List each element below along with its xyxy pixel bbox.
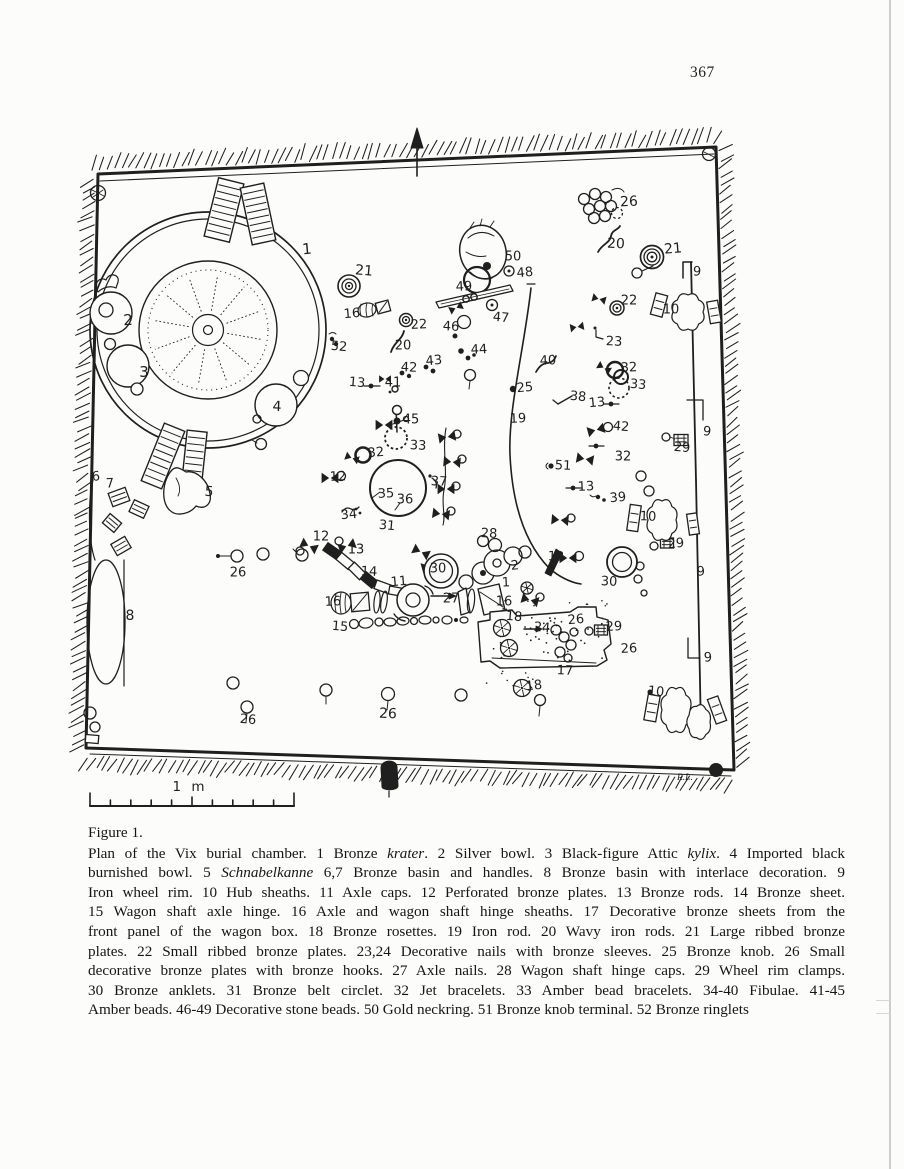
figure-label-40: 40 — [539, 353, 556, 369]
figure-label-35: 35 — [377, 486, 394, 502]
figure-label-7: 7 — [106, 476, 115, 491]
figure-label-26: 26 — [230, 566, 247, 581]
scan-artifact-tick — [876, 1013, 891, 1014]
figure-label-18: 18 — [505, 609, 523, 625]
figure-label-13: 13 — [588, 395, 606, 411]
figure-caption-label: Figure 1. — [88, 823, 845, 843]
caption-line: 15 Wagon shaft axle hinge. 16 Axle and w… — [88, 902, 845, 922]
figure-label-32: 32 — [615, 450, 632, 465]
scan-artifact-tick — [876, 1000, 891, 1001]
figure-label-14: 14 — [360, 564, 377, 580]
figure-label-2: 2 — [510, 558, 520, 574]
figure-label-13: 13 — [348, 375, 366, 391]
figure-label-32: 32 — [620, 360, 637, 376]
figure-label-22: 22 — [621, 294, 638, 309]
figure-label-30: 30 — [600, 574, 617, 590]
figure-label-26: 26 — [620, 194, 639, 211]
figure-label-49: 49 — [455, 279, 472, 295]
figure-label-21: 21 — [663, 240, 682, 257]
figure-label-13: 13 — [348, 543, 365, 558]
figure-label-46: 46 — [442, 319, 459, 335]
scanned-page: 367 1 mR.L.12345678999910101011121212131… — [0, 0, 904, 1169]
figure-label-52: 52 — [330, 339, 348, 355]
figure-label-39: 39 — [609, 490, 627, 506]
figure-label-24: 24 — [533, 620, 551, 636]
figure-label-38: 38 — [569, 389, 587, 405]
figure-label-11: 11 — [390, 574, 408, 590]
figure-label-42: 42 — [612, 419, 630, 435]
figure-label-16: 16 — [324, 594, 341, 610]
figure-label-12: 12 — [547, 549, 564, 565]
caption-line: Amber beads. 46-49 Decorative stone bead… — [88, 1000, 845, 1020]
figure-label-42: 42 — [400, 360, 417, 376]
figure-label-9: 9 — [696, 564, 706, 580]
figure-label-29: 29 — [667, 536, 685, 552]
figure-label-4: 4 — [272, 399, 282, 415]
figure-label-20: 20 — [607, 236, 626, 253]
caption-line: Iron wheel rim. 10 Hub sheaths. 11 Axle … — [88, 883, 845, 903]
figure-label-33: 33 — [629, 377, 647, 393]
figure-label-51: 51 — [554, 458, 571, 474]
scan-artifact-line — [889, 0, 891, 1169]
figure-label-13: 13 — [577, 479, 594, 495]
figure-label-32: 32 — [367, 445, 385, 461]
figure-label-44: 44 — [470, 342, 487, 358]
figure-label-10: 10 — [639, 509, 656, 525]
figure-label-26: 26 — [379, 706, 398, 723]
caption-line: decorative bronze plates with bronze hoo… — [88, 961, 845, 981]
figure-label-45: 45 — [403, 413, 420, 428]
figure-label-6: 6 — [91, 469, 101, 485]
figure-label-26: 26 — [567, 612, 585, 628]
figure-label-1: 1 — [502, 575, 511, 590]
figure-label-26: 26 — [620, 641, 637, 657]
figure-caption: Figure 1. Plan of the Vix burial chamber… — [88, 823, 845, 1020]
figure-label-31: 31 — [378, 518, 396, 534]
figure-label-3: 3 — [139, 363, 149, 381]
figure-label-50: 50 — [505, 250, 522, 265]
caption-line: front panel of the wagon box. 18 Bronze … — [88, 922, 845, 942]
figure-label-5: 5 — [204, 484, 214, 501]
figure-label-12: 12 — [329, 469, 346, 485]
figure-label-16: 16 — [343, 306, 361, 322]
figure-label-36: 36 — [397, 493, 414, 508]
figure-label-10: 10 — [663, 303, 680, 318]
figure-label-9: 9 — [693, 264, 702, 279]
figure-label-17: 17 — [556, 663, 573, 679]
figure-label-33: 33 — [409, 438, 426, 454]
figure-label-25: 25 — [516, 380, 534, 396]
figure-label-30: 30 — [430, 562, 447, 577]
figure-label-1: 1 — [301, 240, 312, 259]
figure-label-15: 15 — [331, 619, 349, 635]
figure-label-23: 23 — [605, 334, 622, 350]
figure-label-20: 20 — [395, 339, 412, 354]
figure-label-10: 10 — [647, 684, 665, 700]
figure-label-26: 26 — [239, 712, 257, 728]
figure-label-22: 22 — [410, 317, 427, 333]
figure-label-21: 21 — [354, 262, 373, 279]
figure-label-19: 19 — [509, 411, 526, 427]
figure-label-16: 16 — [496, 595, 513, 610]
figure-label-9: 9 — [702, 424, 712, 440]
figure-label-37: 37 — [430, 474, 447, 490]
figure-caption-text: Plan of the Vix burial chamber. 1 Bronze… — [88, 844, 845, 1020]
figure-label-9: 9 — [704, 650, 713, 665]
scale-bar-label: 1 m — [172, 779, 207, 795]
caption-line: plates. 22 Small ribbed bronze plates. 2… — [88, 942, 845, 962]
figure-label-41: 41 — [385, 376, 402, 391]
figure-label-29: 29 — [605, 619, 622, 635]
figure-label-8: 8 — [126, 608, 135, 624]
figure-label-27: 27 — [443, 592, 460, 607]
figure-label-47: 47 — [492, 310, 510, 326]
figure-label-29: 29 — [673, 440, 691, 456]
caption-line: Plan of the Vix burial chamber. 1 Bronze… — [88, 844, 845, 864]
figure-label-28: 28 — [480, 526, 497, 542]
figure-label-18: 18 — [525, 678, 543, 694]
figure-label-34: 34 — [340, 507, 358, 523]
figure-label-2: 2 — [123, 311, 133, 329]
caption-line: 30 Bronze anklets. 31 Bronze belt circle… — [88, 981, 845, 1001]
illustrator-signature: R.L. — [676, 773, 693, 783]
figure-label-48: 48 — [516, 265, 534, 281]
figure-label-12: 12 — [313, 530, 330, 545]
figure-label-43: 43 — [425, 353, 443, 369]
caption-line: burnished bowl. 5 Schnabelkanne 6,7 Bron… — [88, 863, 845, 883]
